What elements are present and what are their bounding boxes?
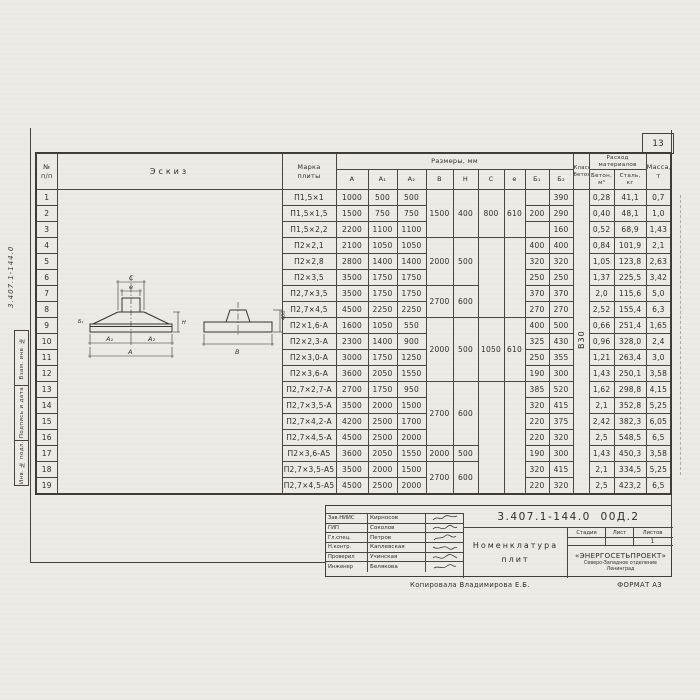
cell-b: 1500 (426, 190, 453, 238)
stamp-label: Взам. инв. № (19, 337, 25, 379)
cell-row-number: 9 (36, 318, 57, 334)
cell-a1: 1050 (368, 318, 397, 334)
cell-mass: 6,5 (646, 430, 671, 446)
cell-concrete: 2,5 (589, 478, 614, 495)
cell-b1: 370 (525, 286, 549, 302)
cell-row-number: 6 (36, 270, 57, 286)
cell-b2: 270 (549, 302, 573, 318)
cell-mass: 3,0 (646, 350, 671, 366)
cell-a2: 1550 (397, 446, 426, 462)
cell-h: 500 (453, 446, 478, 462)
cell-a: 3500 (336, 270, 368, 286)
cell-b1 (525, 222, 549, 238)
cell-a2: 1550 (397, 366, 426, 382)
cell-a: 3500 (336, 462, 368, 478)
cell-a: 3000 (336, 350, 368, 366)
cell-row-number: 5 (36, 254, 57, 270)
cell-concrete: 1,21 (589, 350, 614, 366)
header-dim-b: В (426, 170, 453, 190)
title-block: Зав.НИИС Кирносов ГИП Соколов Гл.спец. П… (325, 505, 672, 577)
cell-b1: 320 (525, 254, 549, 270)
cell-b1: 385 (525, 382, 549, 398)
cell-concrete: 1,43 (589, 446, 614, 462)
cell-steel: 450,3 (614, 446, 646, 462)
dim-label-h: Н (182, 320, 186, 326)
drawing-title: Номенклатура плит (464, 528, 568, 578)
cell-steel: 298,8 (614, 382, 646, 398)
header-concrete: Бетон, м³ (589, 170, 614, 190)
dim-label-a: А (127, 348, 132, 356)
cell-mass: 6,3 (646, 302, 671, 318)
page-number-box: 13 (642, 133, 674, 154)
header-concrete-class: Класс бетона (573, 153, 589, 190)
cell-mark: П2,7×3,5 (282, 286, 336, 302)
cell-b2: 520 (549, 382, 573, 398)
cell-row-number: 3 (36, 222, 57, 238)
cell-steel: 225,5 (614, 270, 646, 286)
cell-mass: 5,25 (646, 462, 671, 478)
cell-b2: 300 (549, 446, 573, 462)
cell-a1: 2500 (368, 478, 397, 495)
header-sketch: Эскиз (57, 153, 282, 190)
title-block-row: Проверил Учинская (326, 553, 463, 563)
cell-mass: 5,25 (646, 398, 671, 414)
cell-a: 1000 (336, 190, 368, 206)
cell-mark: П2×3,6-А5 (282, 446, 336, 462)
cell-mark: П1,5×2,2 (282, 222, 336, 238)
header-steel: Сталь, кг (614, 170, 646, 190)
margin-stamp-boxes: Взам. инв. № Подпись и дата Инв. № подл. (14, 330, 29, 486)
organization-city: Ленинград (607, 567, 635, 573)
header-dim-e: е (504, 170, 525, 190)
cell-b2: 320 (549, 478, 573, 495)
cell-a2: 900 (397, 334, 426, 350)
cell-steel: 41,1 (614, 190, 646, 206)
cell-b: 2700 (426, 286, 453, 318)
organization-name: «ЭНЕРГОСЕТЬПРОЕКТ» (575, 551, 666, 560)
cell-concrete: 2,1 (589, 462, 614, 478)
header-num: № п/п (36, 153, 57, 190)
cell-b2: 320 (549, 430, 573, 446)
cell-steel: 263,4 (614, 350, 646, 366)
cell-mass: 6,5 (646, 478, 671, 495)
cell-b: 2700 (426, 382, 453, 446)
cell-row-number: 12 (36, 366, 57, 382)
cell-row-number: 4 (36, 238, 57, 254)
cell-mark: П2×2,8 (282, 254, 336, 270)
cell-a2: 1750 (397, 286, 426, 302)
cell-h: 400 (453, 190, 478, 238)
cell-b1: 200 (525, 206, 549, 222)
stage-label: Стадия (568, 528, 606, 537)
cell-b2: 375 (549, 414, 573, 430)
cell-a2: 1100 (397, 222, 426, 238)
cell-b2: 500 (549, 318, 573, 334)
cell-row-number: 8 (36, 302, 57, 318)
cell-concrete: 1,05 (589, 254, 614, 270)
cell-mass: 2,4 (646, 334, 671, 350)
cell-mark: П2,7×3,5-А (282, 398, 336, 414)
cell-b: 2700 (426, 462, 453, 495)
cell-row-number: 1 (36, 190, 57, 206)
stamp-label: Подпись и дата (19, 387, 25, 438)
dim-label-a1: А₁ (105, 335, 113, 343)
cell-h: 500 (453, 238, 478, 286)
header-mark: Марка плиты (282, 153, 336, 190)
cell-a2: 1500 (397, 462, 426, 478)
cell-mass: 1,43 (646, 222, 671, 238)
cell-a: 4500 (336, 478, 368, 495)
cell-a1: 2050 (368, 366, 397, 382)
cell-b1: 220 (525, 478, 549, 495)
cell-row-number: 16 (36, 430, 57, 446)
dim-label-side-height: 400 (281, 310, 287, 320)
stamp-box: Взам. инв. № (14, 330, 29, 385)
cell-a2: 1750 (397, 270, 426, 286)
cell-a: 2700 (336, 382, 368, 398)
cell-row-number: 17 (36, 446, 57, 462)
cell-concrete: 0,52 (589, 222, 614, 238)
cell-a1: 500 (368, 190, 397, 206)
cell-a2: 550 (397, 318, 426, 334)
cell-a1: 2000 (368, 398, 397, 414)
dim-label-a2: А₂ (147, 335, 155, 343)
cell-mass: 3,58 (646, 446, 671, 462)
cell-b1: 190 (525, 446, 549, 462)
signature (426, 524, 463, 533)
frame-bottom-line (30, 562, 326, 563)
cell-mark: П2×3,5 (282, 270, 336, 286)
cell-a: 2100 (336, 238, 368, 254)
cell-steel: 123,8 (614, 254, 646, 270)
cell-a2: 1050 (397, 238, 426, 254)
cell-a: 4200 (336, 414, 368, 430)
dim-label-b2: Б₂ (78, 319, 83, 325)
cell-steel: 382,3 (614, 414, 646, 430)
cell-a2: 750 (397, 206, 426, 222)
cell-e: 610 (504, 190, 525, 238)
page-number: 13 (652, 139, 663, 149)
header-dim-c: С (478, 170, 504, 190)
cell-mass: 3,58 (646, 366, 671, 382)
concrete-class-cell: В30 (573, 190, 589, 495)
cell-a: 3500 (336, 398, 368, 414)
dim-label-c: С (129, 274, 134, 282)
cell-row-number: 2 (36, 206, 57, 222)
cell-concrete: 1,37 (589, 270, 614, 286)
signature (426, 562, 463, 572)
cell-b2: 250 (549, 270, 573, 286)
cell-b2: 400 (549, 238, 573, 254)
organization-block: «ЭНЕРГОСЕТЬПРОЕКТ» Северо-Западное отдел… (568, 546, 673, 578)
cell-a1: 1750 (368, 350, 397, 366)
cell-a: 3600 (336, 446, 368, 462)
cell-steel: 115,6 (614, 286, 646, 302)
cell-steel: 101,9 (614, 238, 646, 254)
cell-a: 1600 (336, 318, 368, 334)
table-row: 1П1,5×110005005001500400800610390В300,28… (36, 190, 671, 206)
cell-mark: П2,7×4,2-А (282, 414, 336, 430)
cell-a: 2200 (336, 222, 368, 238)
scan-artifact-dashes (680, 195, 681, 475)
cell-mark: П2,7×2,7-А (282, 382, 336, 398)
cell-steel: 334,5 (614, 462, 646, 478)
cell-concrete: 0,28 (589, 190, 614, 206)
cell-b2: 355 (549, 350, 573, 366)
title-block-row: Н.контр. Каплевская (326, 543, 463, 553)
cell-row-number: 19 (36, 478, 57, 495)
cell-b: 2000 (426, 446, 453, 462)
cell-steel: 48,1 (614, 206, 646, 222)
cell-h: 600 (453, 382, 478, 446)
cell-h: 600 (453, 462, 478, 495)
cell-c: 800 (478, 190, 504, 238)
header-mass: Масса, т (646, 153, 671, 190)
header-dim-b2: Б₂ (549, 170, 573, 190)
cell-steel: 155,4 (614, 302, 646, 318)
title-block-signatures: Зав.НИИС Кирносов ГИП Соколов Гл.спец. П… (326, 513, 464, 578)
cell-row-number: 11 (36, 350, 57, 366)
dim-label-b: В (235, 348, 240, 356)
cell-mass: 2,63 (646, 254, 671, 270)
cell-b1: 320 (525, 462, 549, 478)
signature (426, 514, 463, 523)
cell-a: 4500 (336, 430, 368, 446)
cell-row-number: 10 (36, 334, 57, 350)
cell-mass: 1,0 (646, 206, 671, 222)
cell-b2: 290 (549, 206, 573, 222)
cell-a1: 1750 (368, 286, 397, 302)
cell-a: 3500 (336, 286, 368, 302)
role-label: Зав.НИИС (326, 514, 368, 523)
cell-b1: 220 (525, 430, 549, 446)
role-label: Гл.спец. (326, 533, 368, 542)
cell-a2: 950 (397, 382, 426, 398)
cell-row-number: 13 (36, 382, 57, 398)
cell-b1: 325 (525, 334, 549, 350)
header-dimensions-group: Размеры, мм (336, 153, 573, 170)
cell-a1: 750 (368, 206, 397, 222)
copied-by-note: Копировала Владимирова Е.Б. (410, 581, 530, 589)
title-block-row: Зав.НИИС Кирносов (326, 514, 463, 524)
cell-b1: 220 (525, 414, 549, 430)
cell-a2: 2000 (397, 478, 426, 495)
cell-concrete: 0,40 (589, 206, 614, 222)
cell-mark: П2,7×3,5-А5 (282, 462, 336, 478)
drawing-title-line2: плит (501, 553, 529, 567)
cell-concrete: 1,43 (589, 366, 614, 382)
title-block-row: Инженер Белякова (326, 562, 463, 572)
header-dim-a: А (336, 170, 368, 190)
cell-b1: 400 (525, 238, 549, 254)
title-block-right: Стадия Лист Листов 1 «ЭНЕРГОСЕТЬПРОЕКТ» … (568, 528, 673, 578)
cell-concrete: 2,5 (589, 430, 614, 446)
header-consumption-group: Расход материалов (589, 153, 646, 170)
cell-row-number: 7 (36, 286, 57, 302)
cell-b1: 250 (525, 270, 549, 286)
cell-steel: 423,2 (614, 478, 646, 495)
title-block-row: Гл.спец. Петров (326, 533, 463, 543)
header-dim-a1: А₁ (368, 170, 397, 190)
role-label: Инженер (326, 562, 368, 572)
sheets-value: 1 (634, 538, 671, 545)
sketch-drawing: С е А₁ А₂ А Н Б₂ В 400 (76, 272, 288, 366)
cell-row-number: 14 (36, 398, 57, 414)
cell-b2: 160 (549, 222, 573, 238)
cell-b2: 430 (549, 334, 573, 350)
cell-mark: П2,7×4,5-А5 (282, 478, 336, 495)
cell-a: 3600 (336, 366, 368, 382)
person-name: Кирносов (368, 514, 426, 523)
cell-e (504, 382, 525, 495)
cell-a2: 1250 (397, 350, 426, 366)
drawing-title-line1: Номенклатура (473, 539, 558, 553)
cell-a1: 1100 (368, 222, 397, 238)
cell-steel: 250,1 (614, 366, 646, 382)
cell-b1: 270 (525, 302, 549, 318)
cell-a1: 1050 (368, 238, 397, 254)
cell-concrete: 2,1 (589, 398, 614, 414)
cell-mass: 2,1 (646, 238, 671, 254)
role-label: ГИП (326, 524, 368, 533)
cell-mass: 1,65 (646, 318, 671, 334)
cell-mark: П2×2,1 (282, 238, 336, 254)
cell-mark: П2×2,3-А (282, 334, 336, 350)
cell-concrete: 0,96 (589, 334, 614, 350)
cell-mass: 5,0 (646, 286, 671, 302)
cell-mark: П2,7×4,5 (282, 302, 336, 318)
cell-a: 2300 (336, 334, 368, 350)
header-dim-h: Н (453, 170, 478, 190)
cell-mark: П1,5×1 (282, 190, 336, 206)
cell-concrete: 2,52 (589, 302, 614, 318)
scanned-drawing-sheet: { "page_number": "13", "left_margin": { … (0, 0, 700, 700)
cell-b2: 415 (549, 398, 573, 414)
cell-row-number: 15 (36, 414, 57, 430)
stage-sheet-header: Стадия Лист Листов (568, 528, 673, 538)
cell-steel: 251,4 (614, 318, 646, 334)
role-label: Проверил (326, 553, 368, 562)
cell-concrete: 2,42 (589, 414, 614, 430)
cell-mass: 3,42 (646, 270, 671, 286)
bottom-note: Копировала Владимирова Е.Б. ФОРМАТ А3 (410, 581, 662, 589)
person-name: Учинская (368, 553, 426, 562)
cell-concrete: 0,66 (589, 318, 614, 334)
cell-a1: 2050 (368, 446, 397, 462)
cell-a1: 1400 (368, 254, 397, 270)
cell-b: 2000 (426, 318, 453, 382)
cell-mass: 6,05 (646, 414, 671, 430)
document-number: 3.407.1-144.0 00Д.2 (464, 506, 673, 528)
sheet-value (606, 538, 634, 545)
cell-mass: 0,7 (646, 190, 671, 206)
cell-a1: 1750 (368, 270, 397, 286)
cell-a: 1500 (336, 206, 368, 222)
cell-steel: 548,5 (614, 430, 646, 446)
cell-c (478, 238, 504, 318)
cell-b: 2000 (426, 238, 453, 286)
cell-h: 500 (453, 318, 478, 382)
cell-concrete: 0,84 (589, 238, 614, 254)
cell-a1: 1750 (368, 382, 397, 398)
cell-a: 2800 (336, 254, 368, 270)
margin-doc-number: 3.407.1-144.0 (4, 212, 18, 308)
role-label: Н.контр. (326, 543, 368, 552)
signature (426, 553, 463, 562)
cell-b2: 370 (549, 286, 573, 302)
cell-a1: 2250 (368, 302, 397, 318)
cell-a2: 2000 (397, 430, 426, 446)
cell-b2: 390 (549, 190, 573, 206)
person-name: Каплевская (368, 543, 426, 552)
cell-a1: 1400 (368, 334, 397, 350)
stamp-label: Инв. № подл. (19, 441, 25, 484)
cell-mark: П2,7×4,5-А (282, 430, 336, 446)
person-name: Соколов (368, 524, 426, 533)
sheets-label: Листов (634, 528, 671, 537)
cell-b2: 300 (549, 366, 573, 382)
cell-a2: 2250 (397, 302, 426, 318)
stage-value (568, 538, 606, 545)
cell-mark: П2×3,0-А (282, 350, 336, 366)
cell-a1: 2500 (368, 430, 397, 446)
frame-left-line (30, 128, 31, 562)
stage-sheet-values: 1 (568, 538, 673, 546)
cell-c (478, 382, 504, 495)
cell-steel: 328,0 (614, 334, 646, 350)
cell-a2: 1700 (397, 414, 426, 430)
cell-b1 (525, 190, 549, 206)
person-name: Петров (368, 533, 426, 542)
cell-b1: 250 (525, 350, 549, 366)
signature (426, 543, 463, 552)
cell-b1: 320 (525, 398, 549, 414)
title-block-row: ГИП Соколов (326, 524, 463, 534)
cell-steel: 352,8 (614, 398, 646, 414)
sheet-label: Лист (606, 528, 634, 537)
stamp-box: Инв. № подл. (14, 440, 29, 486)
cell-concrete: 2,0 (589, 286, 614, 302)
cell-b2: 320 (549, 254, 573, 270)
dim-label-e: е (129, 283, 133, 291)
header-dim-b1: Б₁ (525, 170, 549, 190)
cell-e (504, 238, 525, 318)
cell-a1: 2500 (368, 414, 397, 430)
cell-b1: 400 (525, 318, 549, 334)
cell-row-number: 18 (36, 462, 57, 478)
cell-e: 610 (504, 318, 525, 382)
header-dim-a2: А₂ (397, 170, 426, 190)
cell-steel: 68,9 (614, 222, 646, 238)
person-name: Белякова (368, 562, 426, 572)
cell-a: 4500 (336, 302, 368, 318)
cell-mark: П2×1,6-А (282, 318, 336, 334)
cell-a2: 500 (397, 190, 426, 206)
cell-mark: П1,5×1,5 (282, 206, 336, 222)
cell-concrete: 1,62 (589, 382, 614, 398)
cell-mark: П2×3,6-А (282, 366, 336, 382)
format-note: ФОРМАТ А3 (617, 581, 662, 589)
cell-a2: 1400 (397, 254, 426, 270)
signature (426, 533, 463, 542)
stamp-box: Подпись и дата (14, 385, 29, 440)
cell-c: 1050 (478, 318, 504, 382)
cell-b2: 415 (549, 462, 573, 478)
cell-a1: 2000 (368, 462, 397, 478)
cell-a2: 1500 (397, 398, 426, 414)
cell-b1: 190 (525, 366, 549, 382)
cell-h: 600 (453, 286, 478, 318)
